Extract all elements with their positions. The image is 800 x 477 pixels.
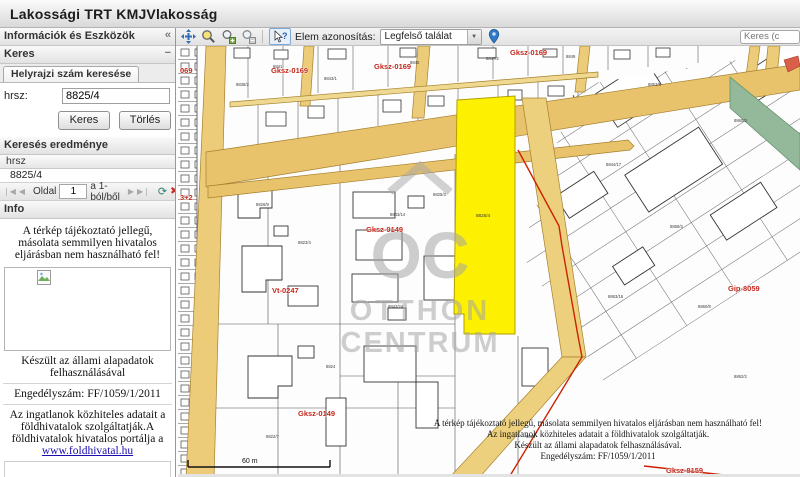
parcel-labels-label: 8843/14 xyxy=(390,212,406,217)
watermark-otthon: OTTHON xyxy=(350,295,490,327)
map-viewport[interactable]: 8825/4 069Gksz-0169Gksz-0169Gksz-01693+2… xyxy=(176,46,800,477)
parcel-labels-label: 8841 xyxy=(273,64,283,69)
info-credit-text: Készült az állami alapadatok felhasználá… xyxy=(3,355,172,379)
collapse-minus-icon[interactable]: − xyxy=(165,46,171,61)
results-panel-title: Keresés eredménye xyxy=(4,139,108,151)
map-disclaimer-label: Készült az állami alapadatok felhasználá… xyxy=(514,440,681,450)
sidebar: Információk és Eszközök « Keres − Helyra… xyxy=(0,28,176,477)
divider xyxy=(3,404,172,405)
parcel-labels-label: 8849 xyxy=(566,54,576,59)
info-land-office-text: Az ingatlanok közhiteles adatait a földh… xyxy=(3,409,172,457)
results-row[interactable]: 8825/4 xyxy=(0,169,175,182)
map-toolbar: ? Elem azonosítás: Legfelső találat ▼ xyxy=(176,28,800,46)
parcel-labels-label: 8845 xyxy=(410,60,420,65)
svg-text:?: ? xyxy=(282,31,288,41)
hrsz-input[interactable] xyxy=(62,88,170,104)
info-panel-header[interactable]: Info xyxy=(0,201,175,219)
watermark-oc: OC xyxy=(371,218,470,292)
parcel-labels-label: 8838/2 xyxy=(236,82,249,87)
foldhivatal-link[interactable]: www.foldhivatal.hu xyxy=(42,445,133,457)
info-license-text: Engedélyszám: FF/1059/1/2011 xyxy=(3,388,172,400)
zoom-icon[interactable] xyxy=(200,29,216,44)
tab-parcel-number-search[interactable]: Helyrajzi szám keresése xyxy=(3,66,139,82)
parcel-labels-label: 8826/9 xyxy=(256,202,269,207)
page-number-input[interactable] xyxy=(59,184,87,199)
parcel-labels-label: 8825/3 xyxy=(433,192,446,197)
chevron-down-icon: ▼ xyxy=(467,30,481,44)
sidebar-header[interactable]: Információk és Eszközök « xyxy=(0,28,175,46)
parcel-labels-label: 8853/5 xyxy=(648,82,661,87)
parcel-labels-label: 8847/2 xyxy=(486,56,499,61)
map-disclaimer-label: Az ingatlanok közhiteles adatait a földh… xyxy=(487,429,709,439)
parcel-labels-label: 8860/8 xyxy=(698,304,711,309)
page-first-button[interactable]: ❘◀ xyxy=(3,187,16,197)
zone-labels-label: Gksz-0169 xyxy=(510,48,547,57)
parcel-labels-label: 8844/17 xyxy=(606,162,622,167)
zone-labels-label: 069 xyxy=(180,66,193,75)
info-panel-body: A térkép tájékoztató jellegű, másolata s… xyxy=(0,219,175,477)
parcel-labels-label: 8862/2 xyxy=(734,374,747,379)
parcel-labels-label: 8860/3 xyxy=(734,118,747,123)
search-buttons-row: Keres Törlés xyxy=(0,106,175,137)
selected-parcel-label: 8825/4 xyxy=(476,213,490,218)
map-disclaimer-label: A térkép tájékoztató jellegű, másolata s… xyxy=(434,418,762,428)
paging-toolbar: ❘◀ ◀ Oldal a 1-ból/ből ▶ ▶❘ ⟳ ✖ xyxy=(0,182,175,201)
results-panel-header[interactable]: Keresés eredménye xyxy=(0,137,175,155)
hrsz-form-row: hrsz: xyxy=(0,83,175,106)
watermark-centrum: CENTRUM xyxy=(341,327,500,359)
page-next-button[interactable]: ▶ xyxy=(128,187,134,197)
parcel-labels-label: 8863/16 xyxy=(608,294,624,299)
identify-select[interactable]: Legfelső találat ▼ xyxy=(380,29,482,45)
collapse-left-icon[interactable]: « xyxy=(165,28,171,43)
pan-icon[interactable] xyxy=(180,29,196,44)
page-of-label: a 1-ból/ből xyxy=(90,181,119,203)
app-title: Lakossági TRT KMJVlakosság xyxy=(0,6,218,22)
refresh-icon[interactable]: ⟳ xyxy=(158,185,167,198)
map-search-input[interactable] xyxy=(740,30,800,44)
clear-button[interactable]: Törlés xyxy=(119,111,171,130)
map-area: ? Elem azonosítás: Legfelső találat ▼ xyxy=(176,28,800,477)
parcel-labels-label: 8824 xyxy=(326,364,336,369)
divider xyxy=(3,383,172,384)
parcel-labels-label: 8822/7 xyxy=(266,434,279,439)
info-disclaimer-text: A térkép tájékoztató jellegű, másolata s… xyxy=(3,225,172,261)
identify-label: Elem azonosítás: xyxy=(295,31,376,43)
zoom-out-icon[interactable] xyxy=(240,29,256,44)
page-label: Oldal xyxy=(33,186,56,197)
search-tabstrip: Helyrajzi szám keresése xyxy=(0,64,175,83)
zone-labels-label: 3+2 xyxy=(180,193,193,202)
info-image-box xyxy=(4,267,171,351)
search-panel-header[interactable]: Keres − xyxy=(0,46,175,64)
zone-labels-label: Gip-8059 xyxy=(728,284,760,293)
parcel-labels-label: 8823/4 xyxy=(298,240,311,245)
identify-pointer-icon[interactable]: ? xyxy=(269,28,291,45)
scale-text: 60 m xyxy=(242,458,258,465)
broken-image-icon xyxy=(37,270,51,285)
info-empty-box xyxy=(4,461,171,477)
zone-labels-label: Gksz-0149 xyxy=(298,409,335,418)
parcel-labels-label: 8843/1 xyxy=(324,76,337,81)
hrsz-label: hrsz: xyxy=(4,90,62,102)
zoom-in-icon[interactable] xyxy=(220,29,236,44)
cadastral-map[interactable]: 8825/4 069Gksz-0169Gksz-0169Gksz-01693+2… xyxy=(178,46,800,477)
search-panel-title: Keres xyxy=(4,48,35,60)
page-prev-button[interactable]: ◀ xyxy=(19,187,25,197)
search-button[interactable]: Keres xyxy=(58,111,110,130)
zone-labels-label: Gksz-8159 xyxy=(666,466,703,475)
results-column-header[interactable]: hrsz xyxy=(0,155,175,169)
zone-labels-label: Gksz-0169 xyxy=(374,62,411,71)
app-title-bar: Lakossági TRT KMJVlakosság xyxy=(0,0,800,28)
zone-labels-label: Vt-0247 xyxy=(272,286,299,295)
map-disclaimer-label: Engedélyszám: FF/1059/1/2011 xyxy=(541,451,656,461)
toolbar-separator xyxy=(262,30,263,43)
info-panel-title: Info xyxy=(4,203,24,215)
sidebar-header-label: Információk és Eszközök xyxy=(4,30,135,42)
identify-select-value: Legfelső találat xyxy=(381,31,467,42)
map-search-box xyxy=(740,30,800,44)
page-last-button[interactable]: ▶❘ xyxy=(137,187,150,197)
map-pin-icon[interactable] xyxy=(486,29,502,44)
parcel-labels-label: 8858/3 xyxy=(670,224,683,229)
